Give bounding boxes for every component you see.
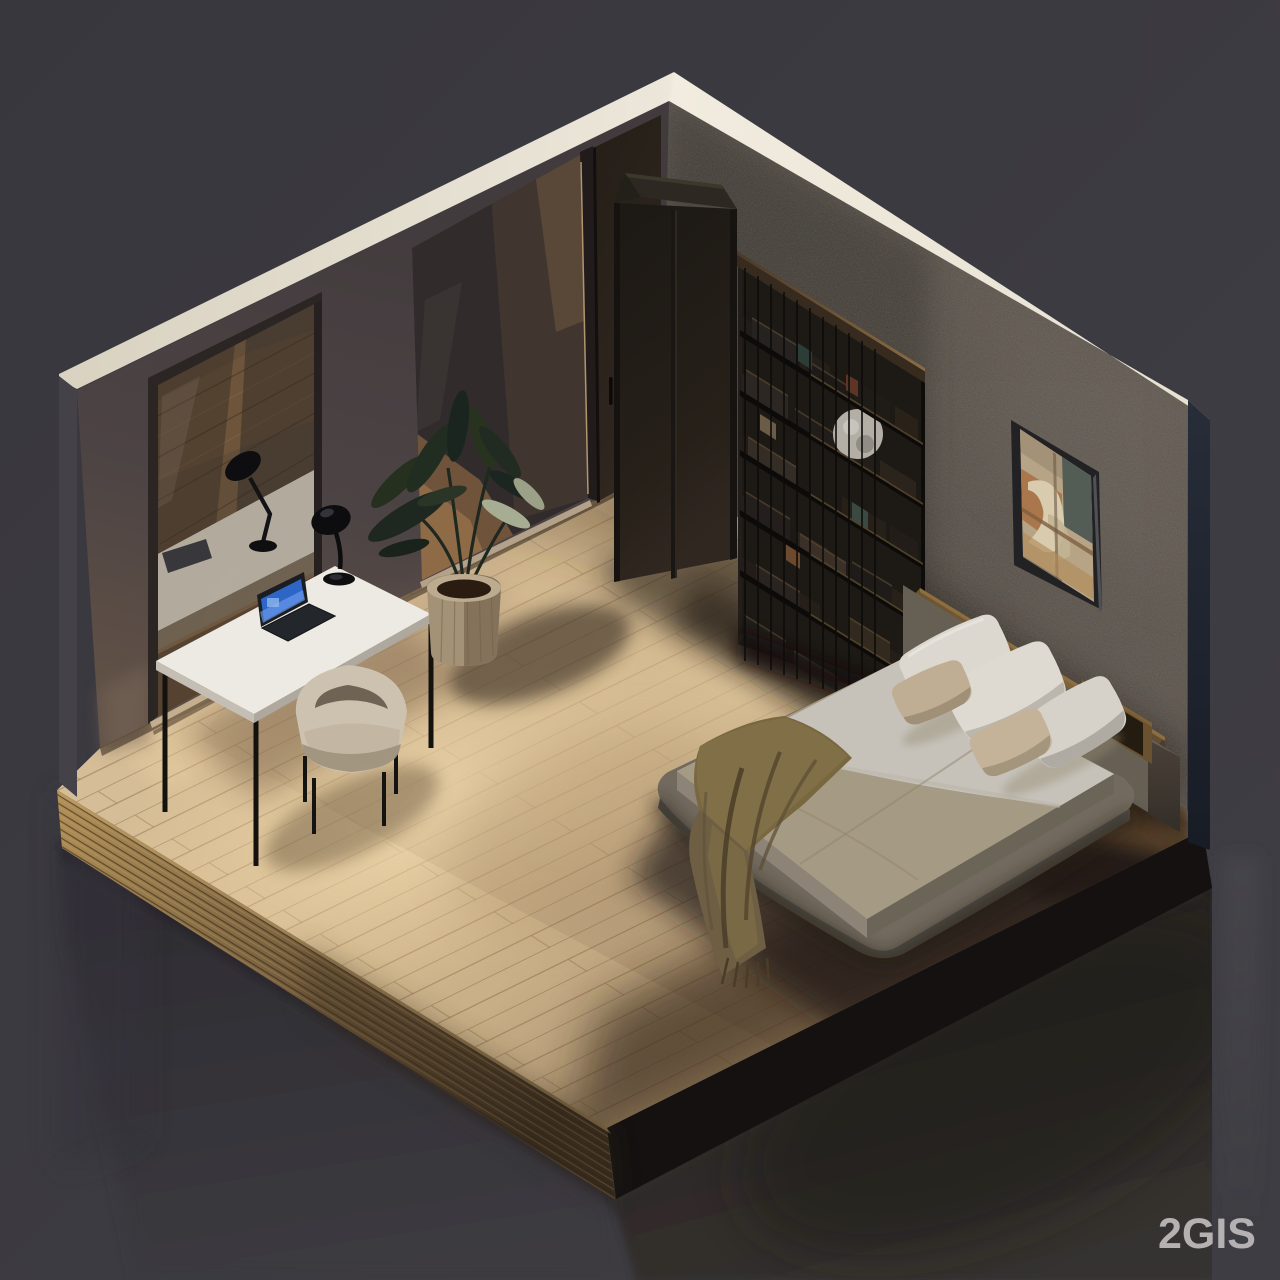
svg-text:2GIS: 2GIS — [1158, 1210, 1256, 1258]
